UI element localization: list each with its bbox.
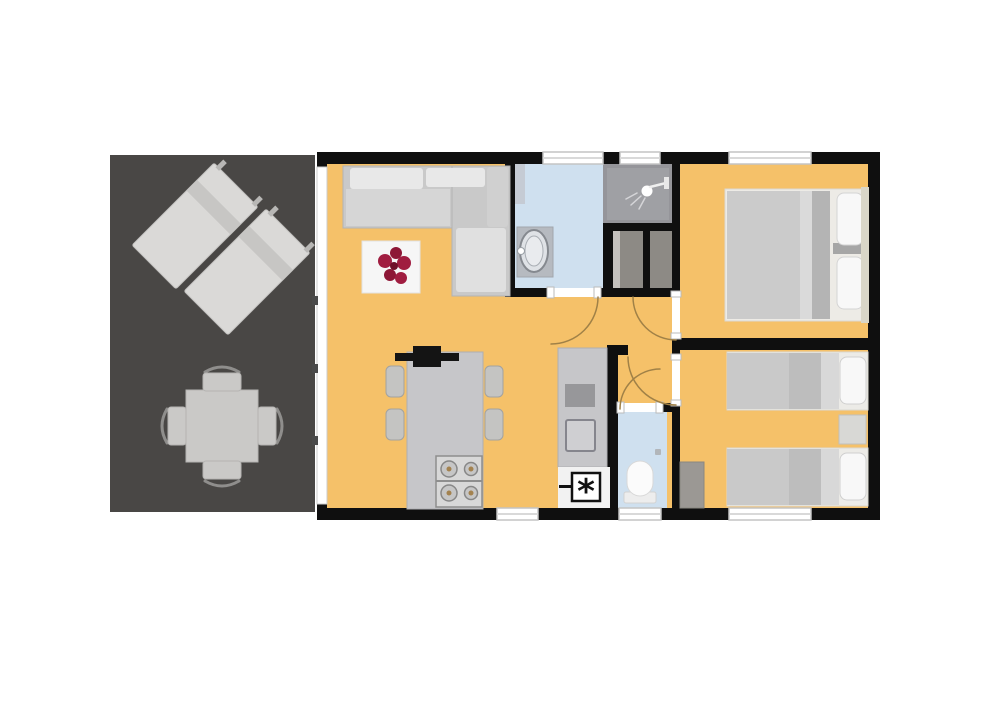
- bar-chair-1: [386, 366, 404, 397]
- floor-plan-svg: *: [0, 0, 1000, 707]
- bathroom-door-gap: [550, 288, 598, 297]
- sofa-chaise-cushion: [456, 228, 506, 292]
- double-bed-headboard: [861, 187, 869, 323]
- patio-chair-seat-top: [203, 373, 241, 391]
- window-shower-mullion: [620, 157, 660, 159]
- window-bedroom-double-mullion: [729, 157, 811, 159]
- glass-door-handle-2: [312, 364, 318, 373]
- double-bed-strip: [812, 191, 830, 319]
- sofa-back-cushion-2: [426, 168, 485, 187]
- glass-door-handle-1: [312, 296, 318, 305]
- toilet-bowl: [627, 461, 653, 496]
- jamb-bath-right: [594, 287, 601, 298]
- sofa-back-cushion-1: [350, 168, 423, 189]
- window-bathroom-mullion: [543, 157, 603, 159]
- wall-bathroom-bottom-left: [505, 288, 550, 297]
- flower-6: [390, 262, 398, 270]
- window-kitchen-mullion: [497, 513, 538, 515]
- window-wc-mullion: [619, 513, 661, 515]
- burner-3-dot: [447, 491, 452, 496]
- burner-2-dot: [469, 467, 474, 472]
- jamb-bed1-top: [671, 291, 681, 297]
- boiler-symbol: *: [577, 472, 595, 512]
- jamb-bath-left: [547, 287, 554, 298]
- burner-4-dot: [469, 491, 474, 496]
- wall-hall-bedroom-top: [672, 164, 680, 295]
- jamb-bed1-bottom: [671, 333, 681, 339]
- twin-bed-b-strip: [821, 449, 839, 505]
- bar-chair-3: [485, 366, 503, 397]
- flower-1: [378, 254, 392, 268]
- twin-bed-b-pillow: [840, 453, 866, 500]
- twin-bed-a-strip: [821, 353, 839, 409]
- double-bed-pillow-2: [837, 257, 863, 309]
- stove-divider: [436, 480, 482, 482]
- flower-5: [395, 272, 407, 284]
- double-bed-duvet: [727, 191, 807, 319]
- bedroom-twin-door-gap: [672, 357, 680, 403]
- counter-appliance: [565, 384, 595, 407]
- glass-door-handle-3: [312, 436, 318, 445]
- twin-bed-a-duvet: [727, 353, 789, 409]
- closet-right: [650, 231, 672, 288]
- shower-pipe-icon: [664, 177, 669, 189]
- shower-tray: [607, 168, 669, 220]
- twin-bed-b-duvet: [727, 449, 789, 505]
- sofa-seat: [346, 189, 450, 226]
- wall-closet-divider: [643, 231, 650, 288]
- washbasin-tap: [518, 248, 525, 255]
- range-hood-box: [413, 346, 441, 367]
- washbasin-inner: [525, 236, 543, 266]
- twin-nightstand: [839, 415, 866, 444]
- wall-bedroom-divider: [677, 338, 880, 350]
- sofa-corner-cushion: [487, 167, 508, 227]
- twin-bed-b-mid: [789, 449, 821, 505]
- flower-4: [384, 269, 396, 281]
- wall-wc-stub: [618, 345, 628, 355]
- bedroom-double-door-gap: [672, 295, 680, 336]
- wc-drain-dot: [655, 449, 661, 455]
- wc-door-gap: [620, 403, 660, 412]
- bar-chair-4: [485, 409, 503, 440]
- burner-1-dot: [447, 467, 452, 472]
- patio-chair-seat-left: [168, 407, 186, 445]
- wall-closet-left: [603, 223, 613, 297]
- twin-bed-a-mid: [789, 353, 821, 409]
- double-bed-pillow-1: [837, 193, 863, 245]
- twin-corner-cabinet: [680, 462, 704, 508]
- wall-hall-bedroom-bottom: [672, 403, 680, 520]
- patio-table-center: [186, 390, 258, 462]
- wall-shower-bottom: [603, 223, 680, 231]
- patio-chair-seat-bottom: [203, 461, 241, 479]
- counter-sink: [566, 420, 595, 451]
- window-bedroom-twin-mullion: [729, 513, 811, 515]
- flower-3: [397, 256, 411, 270]
- floor-plan-canvas: *: [0, 0, 1000, 707]
- patio-chair-seat-right: [258, 407, 276, 445]
- bathroom-corner-shade: [515, 164, 525, 204]
- terrace-glass-door: [317, 167, 327, 504]
- jamb-bed2-top: [671, 354, 681, 360]
- twin-bed-a-pillow: [840, 357, 866, 404]
- double-bed-fold: [800, 191, 812, 319]
- closet-left-door-edge: [613, 231, 620, 288]
- bar-chair-2: [386, 409, 404, 440]
